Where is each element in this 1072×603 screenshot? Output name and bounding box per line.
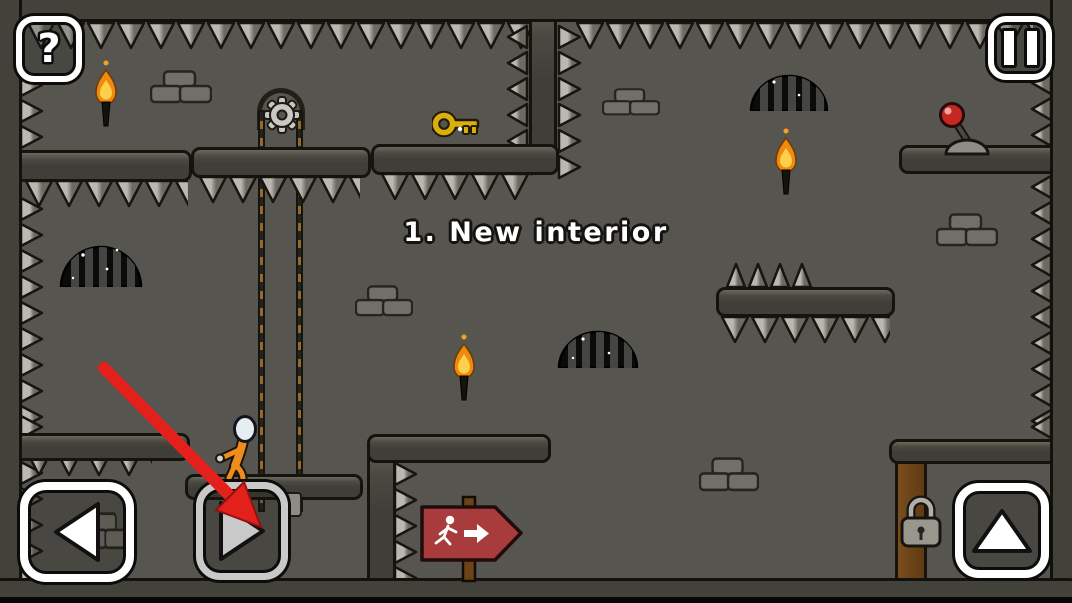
tutorial-arrow [92, 358, 277, 543]
torch [448, 332, 480, 404]
level-title: 1. New interior [403, 217, 668, 248]
platform-spikes [725, 262, 813, 289]
lever [936, 98, 998, 156]
platform-spikes [720, 315, 890, 345]
brick-decoration [150, 70, 212, 104]
torch [770, 126, 802, 198]
wall-right [1050, 0, 1072, 603]
brick-decoration [602, 88, 660, 116]
platform [367, 434, 551, 463]
brick-decoration [355, 285, 413, 317]
ceiling-spikes [575, 21, 1033, 51]
game-stage: 1. New interior ? [0, 0, 1072, 603]
vent-dome [59, 235, 143, 287]
wall-spikes [506, 24, 531, 154]
torch [90, 58, 122, 130]
key [432, 106, 480, 142]
brick-decoration [936, 213, 998, 247]
ceiling-spikes [26, 21, 532, 51]
wall-spikes [19, 196, 44, 432]
wall-spikes [393, 461, 418, 579]
question-mark-icon: ? [37, 29, 60, 69]
platform [12, 150, 192, 182]
pause-icon [1024, 28, 1040, 68]
triangle-up-icon [970, 505, 1034, 557]
floating-spike-platform [716, 287, 895, 317]
gear-icon [263, 96, 301, 134]
platform [371, 144, 559, 175]
platform-spikes [198, 175, 360, 205]
padlock [898, 490, 944, 552]
pause-button[interactable] [988, 16, 1052, 80]
wall-top [0, 0, 1072, 22]
screen-bottom-bar [0, 597, 1072, 603]
platform [191, 147, 371, 178]
wall-left [0, 0, 22, 603]
wall-spikes [557, 24, 582, 180]
vent-dome [557, 325, 639, 368]
pause-icon [1001, 28, 1017, 68]
vent-dome [749, 69, 829, 111]
platform [889, 439, 1072, 464]
platform-spikes [380, 172, 532, 202]
brick-decoration [699, 457, 759, 492]
platform-spikes [24, 179, 188, 209]
jump-button[interactable] [955, 483, 1049, 578]
help-button[interactable]: ? [16, 16, 82, 82]
exit-sign [419, 493, 527, 583]
